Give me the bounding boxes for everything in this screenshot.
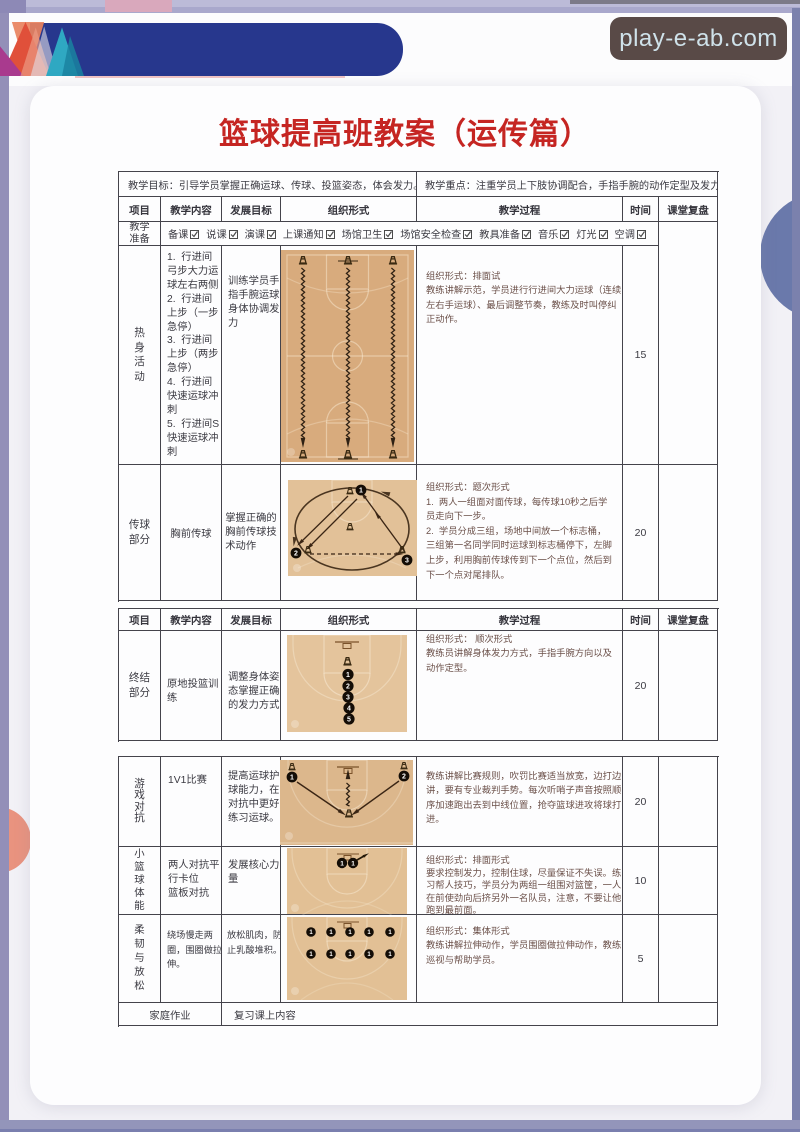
svg-text:2: 2 — [346, 684, 350, 691]
svg-text:1: 1 — [359, 488, 363, 495]
svg-text:2: 2 — [294, 551, 298, 558]
svg-text:2: 2 — [402, 774, 406, 781]
svg-text:1: 1 — [351, 860, 355, 867]
svg-text:5: 5 — [347, 717, 351, 724]
svg-text:4: 4 — [347, 706, 351, 713]
svg-text:3: 3 — [405, 558, 409, 565]
svg-text:3: 3 — [346, 695, 350, 702]
svg-text:1: 1 — [346, 672, 350, 679]
svg-text:1: 1 — [340, 860, 344, 867]
svg-text:1: 1 — [290, 775, 294, 782]
